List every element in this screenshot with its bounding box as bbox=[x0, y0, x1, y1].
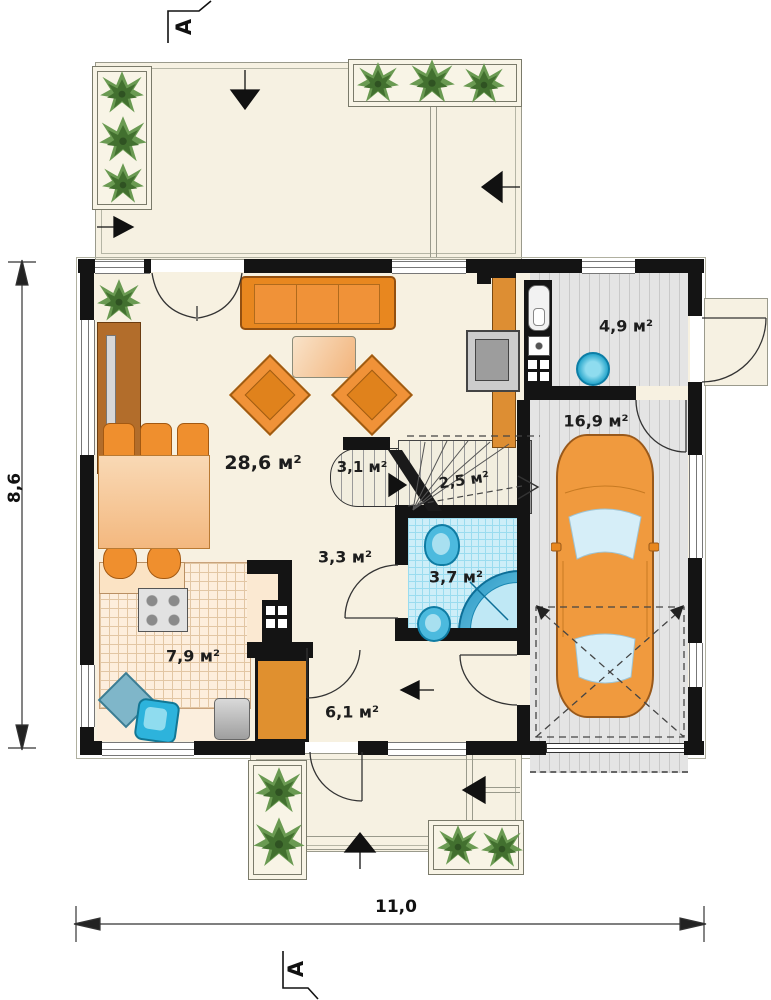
dimension-width-label: 11,0 bbox=[368, 897, 424, 917]
wall-segment bbox=[80, 259, 94, 320]
wall-segment bbox=[524, 386, 636, 400]
plant-icon bbox=[254, 766, 304, 816]
toilet bbox=[424, 524, 460, 566]
plant-icon bbox=[101, 162, 145, 206]
dimension-height-label: 8,6 bbox=[5, 472, 25, 504]
flue-opening bbox=[278, 619, 287, 628]
wall-segment bbox=[517, 705, 530, 741]
wall-segment bbox=[244, 259, 392, 273]
counter-sink-icon bbox=[528, 336, 550, 356]
plant-icon bbox=[356, 61, 400, 105]
wall-segment bbox=[395, 505, 530, 518]
porch-edge-line bbox=[472, 787, 520, 788]
wall-segment bbox=[477, 272, 491, 284]
chimney-shaft bbox=[255, 658, 309, 742]
plant-icon bbox=[436, 824, 480, 868]
car bbox=[551, 431, 659, 721]
stove bbox=[138, 588, 188, 632]
plant-icon bbox=[252, 816, 306, 870]
entry-step bbox=[704, 298, 768, 386]
room-label-entry: 6,1 м² bbox=[325, 703, 379, 722]
flue-opening bbox=[266, 619, 275, 628]
plant-icon bbox=[98, 115, 148, 165]
plant-icon bbox=[462, 62, 506, 106]
counter-icon bbox=[528, 372, 537, 381]
sofa bbox=[240, 276, 396, 330]
window bbox=[81, 320, 95, 455]
window bbox=[689, 455, 703, 558]
wall-segment bbox=[688, 259, 702, 316]
room-label-garage: 16,9 м² bbox=[563, 412, 628, 431]
counter-icon bbox=[540, 360, 549, 369]
under-stairs-pantry bbox=[330, 448, 400, 507]
plant-icon bbox=[480, 826, 524, 870]
utility-sink bbox=[576, 352, 610, 386]
wall-segment bbox=[517, 400, 530, 655]
wall-segment bbox=[466, 259, 582, 273]
wall-segment bbox=[358, 741, 388, 755]
wall-segment bbox=[395, 518, 408, 565]
terrace-edge-line bbox=[436, 106, 437, 258]
wall-segment bbox=[688, 558, 702, 643]
plant-icon bbox=[96, 278, 142, 324]
section-marker-bottom-label: A bbox=[284, 961, 308, 977]
window bbox=[392, 261, 466, 274]
window bbox=[582, 261, 635, 274]
wall-segment bbox=[194, 741, 305, 755]
wall-segment bbox=[80, 741, 102, 755]
wall-segment bbox=[247, 560, 292, 574]
kitchen-sink-basin bbox=[133, 697, 180, 744]
window bbox=[689, 643, 703, 687]
wall-segment bbox=[466, 741, 546, 755]
window bbox=[95, 261, 150, 274]
window bbox=[388, 742, 466, 756]
wall-segment bbox=[688, 687, 702, 755]
fireplace bbox=[466, 330, 520, 392]
wall-segment bbox=[80, 455, 94, 665]
counter-icon bbox=[528, 360, 537, 369]
room-label-pantry: 3,1 м² bbox=[337, 458, 388, 476]
wall-segment bbox=[395, 628, 530, 641]
wall-segment bbox=[688, 382, 702, 455]
room-label-utility: 4,9 м² bbox=[599, 317, 653, 336]
window bbox=[102, 742, 194, 756]
sofa-seat bbox=[254, 284, 380, 324]
boiler bbox=[528, 285, 550, 331]
porch-edge-line bbox=[472, 792, 520, 793]
water-tank bbox=[214, 698, 250, 740]
counter-icon bbox=[540, 372, 549, 381]
flue-opening bbox=[266, 606, 275, 615]
coffee-table bbox=[292, 336, 356, 378]
dining-table bbox=[98, 455, 210, 549]
room-label-hall: 3,3 м² bbox=[318, 548, 372, 567]
plant-icon bbox=[408, 58, 456, 106]
plant-icon bbox=[99, 70, 145, 116]
bathroom-sink bbox=[417, 606, 451, 642]
room-label-living: 28,6 м² bbox=[224, 452, 301, 474]
wall-segment bbox=[343, 437, 390, 450]
flue-opening bbox=[278, 606, 287, 615]
room-label-bath: 3,7 м² bbox=[429, 568, 483, 587]
terrace-edge-line bbox=[430, 106, 431, 258]
dimension-height bbox=[8, 260, 36, 750]
room-label-kitchen: 7,9 м² bbox=[166, 647, 220, 666]
wall-segment bbox=[247, 642, 313, 658]
floor-plan-canvas: 28,6 м² 3,1 м² 2,5 м² 3,3 м² 3,7 м² 7,9 … bbox=[0, 0, 771, 1000]
section-marker-top-label: A bbox=[172, 19, 196, 35]
garage-door bbox=[546, 743, 686, 753]
wall-segment bbox=[144, 259, 151, 273]
window bbox=[81, 665, 95, 727]
